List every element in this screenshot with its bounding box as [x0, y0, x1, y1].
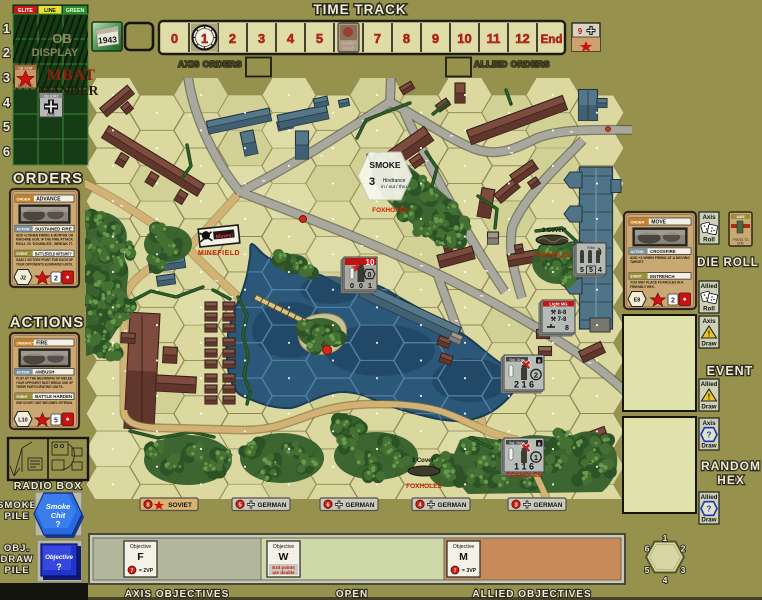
- svg-text:10: 10: [366, 258, 375, 267]
- svg-text:ACTION: ACTION: [17, 227, 31, 231]
- svg-text:2: 2: [229, 31, 236, 46]
- svg-text:7: 7: [131, 569, 134, 575]
- svg-text:GERMAN: GERMAN: [346, 502, 375, 509]
- svg-text:OPEN: OPEN: [336, 589, 368, 600]
- svg-text:J2: J2: [20, 276, 26, 282]
- svg-text:Objective: Objective: [45, 554, 73, 561]
- svg-text:M: M: [459, 551, 468, 563]
- svg-text:4: 4: [3, 95, 11, 110]
- svg-text:1: 1: [663, 533, 668, 543]
- svg-text:Axis: Axis: [702, 420, 716, 427]
- svg-text:ONE SOVIET UNIT BECOMES VETERA: ONE SOVIET UNIT BECOMES VETERAN.: [16, 401, 73, 405]
- svg-text:FOXHOLES: FOXHOLES: [372, 207, 408, 214]
- svg-text:9: 9: [578, 27, 583, 36]
- svg-text:ACTIONS: ACTIONS: [10, 314, 85, 331]
- svg-text:AXIS: AXIS: [736, 215, 745, 219]
- svg-text:2: 2: [3, 45, 11, 60]
- svg-text:3 Cover*: 3 Cover*: [542, 228, 567, 234]
- svg-text:2 1 6: 2 1 6: [514, 380, 534, 390]
- svg-text:3: 3: [681, 565, 686, 575]
- svg-text:FOXHOLES: FOXHOLES: [406, 483, 442, 490]
- svg-text:in / out / thru: in / out / thru: [381, 184, 407, 189]
- svg-text:FOXHOLES: FOXHOLES: [535, 252, 571, 259]
- svg-text:FOXHOLES: FOXHOLES: [506, 472, 542, 479]
- svg-text:TARGET.: TARGET.: [630, 260, 644, 264]
- svg-text:3: 3: [514, 503, 517, 509]
- svg-text:?: ?: [707, 431, 712, 440]
- svg-text:6: 6: [645, 544, 650, 554]
- svg-text:TIME TRACK: TIME TRACK: [313, 2, 406, 17]
- svg-text:AXIS ORDERS: AXIS ORDERS: [178, 59, 242, 69]
- svg-text:ALLIED OBJECTIVES: ALLIED OBJECTIVES: [472, 589, 591, 600]
- svg-text:THEIR PARTICIPATING UNITS.: THEIR PARTICIPATING UNITS.: [16, 385, 64, 389]
- svg-text:⚒ 8-8: ⚒ 8-8: [551, 309, 567, 316]
- svg-text:PILE: PILE: [4, 511, 29, 522]
- svg-text:⚒ 7-8: ⚒ 7-8: [551, 316, 567, 323]
- svg-text:Rifle: Rifle: [587, 245, 596, 250]
- svg-text:1: 1: [368, 281, 372, 290]
- svg-text:CROSSFIRE: CROSSFIRE: [650, 249, 676, 254]
- svg-text:Draw: Draw: [701, 443, 716, 450]
- svg-text:OB STAT: OB STAT: [44, 94, 60, 98]
- svg-text:2: 2: [671, 298, 675, 305]
- svg-text:ORDERS: ORDERS: [13, 170, 83, 187]
- svg-text:9: 9: [432, 31, 439, 46]
- svg-text:LINE: LINE: [44, 8, 56, 14]
- svg-text:2: 2: [54, 276, 58, 283]
- svg-text:5: 5: [589, 267, 593, 274]
- svg-text:4: 4: [598, 267, 602, 274]
- svg-text:SMOKE: SMOKE: [0, 500, 37, 511]
- svg-text:4: 4: [287, 31, 295, 46]
- svg-text:GREEN: GREEN: [66, 8, 85, 14]
- svg-text:0: 0: [359, 281, 363, 290]
- svg-text:OB STAT: OB STAT: [18, 66, 34, 70]
- svg-text:ACTION: ACTION: [17, 371, 31, 375]
- svg-text:RANDOM: RANDOM: [701, 459, 761, 473]
- svg-text:5: 5: [54, 418, 58, 425]
- svg-text:6: 6: [3, 144, 11, 159]
- svg-text:OB: OB: [52, 31, 72, 46]
- svg-text:DISPLAY: DISPLAY: [32, 47, 79, 59]
- svg-text:ACTION: ACTION: [631, 250, 645, 254]
- svg-text:EVENT: EVENT: [707, 364, 754, 378]
- svg-text:Light MG: Light MG: [549, 302, 567, 307]
- svg-text:Roll: Roll: [703, 306, 715, 313]
- svg-text:Draw: Draw: [701, 341, 716, 348]
- svg-text:FRIENDLY HEX.: FRIENDLY HEX.: [630, 285, 655, 289]
- svg-text:MBAT: MBAT: [47, 67, 96, 84]
- svg-text:3: 3: [369, 176, 375, 188]
- svg-text:Allied: Allied: [701, 494, 718, 501]
- svg-text:1: 1: [3, 21, 11, 36]
- svg-text:1943: 1943: [98, 34, 118, 45]
- svg-text:1: 1: [201, 31, 208, 46]
- svg-text:END: END: [737, 242, 744, 246]
- svg-text:4: 4: [663, 575, 668, 585]
- svg-text:EVENT: EVENT: [17, 252, 29, 256]
- svg-text:SOVIET: SOVIET: [168, 502, 192, 509]
- svg-text:Roll: Roll: [703, 237, 715, 244]
- svg-text:are double: are double: [272, 570, 295, 575]
- svg-text:SMOKE: SMOKE: [369, 160, 401, 170]
- svg-text:ADVANCE: ADVANCE: [36, 197, 61, 203]
- svg-text:7: 7: [454, 569, 457, 575]
- svg-text:Allied: Allied: [701, 381, 718, 388]
- svg-text:EVENT: EVENT: [17, 395, 29, 399]
- svg-text:Axis: Axis: [702, 318, 716, 325]
- svg-text:0: 0: [350, 281, 354, 290]
- svg-text:3: 3: [258, 31, 265, 46]
- svg-text:ORDER: ORDER: [631, 220, 645, 224]
- svg-text:ORDER: ORDER: [17, 197, 31, 201]
- svg-text:GERMAN: GERMAN: [258, 502, 287, 509]
- svg-text:Draw: Draw: [701, 404, 716, 411]
- svg-text:AMBUSH: AMBUSH: [35, 370, 54, 375]
- svg-text:= 3VP: = 3VP: [462, 568, 477, 574]
- svg-text:5: 5: [645, 565, 650, 575]
- svg-text:ROLL IS 'DOUBLES', BREAK IT.: ROLL IS 'DOUBLES', BREAK IT.: [16, 242, 73, 246]
- svg-text:LINE: LINE: [47, 113, 56, 117]
- svg-text:0: 0: [368, 272, 372, 279]
- svg-text:EVENT: EVENT: [631, 275, 643, 279]
- svg-text:5: 5: [316, 31, 323, 46]
- svg-text:ORDER/ACT: ORDER/ACT: [17, 341, 35, 345]
- svg-text:AXIS OBJECTIVES: AXIS OBJECTIVES: [125, 589, 229, 600]
- svg-text:7: 7: [374, 31, 381, 46]
- svg-text:Draw: Draw: [701, 517, 716, 524]
- svg-text:= 2VP: = 2VP: [139, 568, 154, 574]
- svg-text:!: !: [708, 330, 711, 339]
- svg-text:8: 8: [403, 31, 410, 46]
- svg-text:BATTLE HARDEN: BATTLE HARDEN: [35, 394, 72, 399]
- svg-text:PILE: PILE: [4, 565, 29, 576]
- svg-text:Axis: Axis: [702, 214, 716, 221]
- svg-text:Allied: Allied: [701, 283, 718, 290]
- svg-text:5: 5: [238, 503, 241, 509]
- svg-text:FIRE: FIRE: [36, 341, 48, 347]
- svg-text:Objective: Objective: [130, 544, 152, 550]
- svg-text:0: 0: [171, 31, 178, 46]
- svg-text:8: 8: [565, 325, 569, 332]
- svg-text:11: 11: [487, 31, 501, 46]
- svg-text:1: 1: [534, 453, 538, 462]
- svg-text:E8: E8: [634, 298, 641, 304]
- svg-text:3 Cover*: 3 Cover*: [412, 458, 437, 464]
- svg-text:2: 2: [681, 544, 686, 554]
- svg-text:SUSTAINED FIRE: SUSTAINED FIRE: [35, 227, 72, 232]
- svg-text:10: 10: [457, 31, 471, 46]
- svg-text:RADIO BOX: RADIO BOX: [14, 480, 83, 492]
- svg-text:Chit: Chit: [51, 511, 66, 520]
- svg-text:5: 5: [580, 267, 584, 274]
- svg-text:2: 2: [534, 371, 538, 380]
- svg-text:MOVE: MOVE: [651, 220, 666, 226]
- svg-text:L10: L10: [18, 418, 27, 424]
- svg-text:ENTRENCH: ENTRENCH: [650, 274, 674, 279]
- svg-text:?: ?: [56, 520, 61, 529]
- svg-text:3: 3: [3, 70, 11, 85]
- svg-text:?: ?: [56, 562, 62, 572]
- svg-text:Death: Death: [343, 46, 355, 51]
- svg-text:HEX: HEX: [717, 473, 745, 487]
- svg-text:F: F: [137, 551, 144, 563]
- svg-text:End: End: [541, 34, 563, 46]
- svg-text:MINEFIELD: MINEFIELD: [198, 250, 240, 257]
- svg-text:W: W: [279, 551, 289, 563]
- svg-text:DIE ROLL: DIE ROLL: [697, 257, 759, 269]
- svg-text:6: 6: [326, 503, 329, 509]
- svg-text:5: 5: [3, 119, 11, 134]
- svg-text:ALLIED ORDERS: ALLIED ORDERS: [474, 59, 550, 69]
- svg-text:Smoke: Smoke: [46, 502, 71, 511]
- svg-text:?: ?: [707, 505, 712, 514]
- svg-text:!: !: [708, 393, 711, 402]
- svg-text:YOUR OPPONENTS ELIMINATED UNIT: YOUR OPPONENTS ELIMINATED UNITS.: [16, 263, 73, 267]
- svg-text:Objective: Objective: [453, 544, 475, 550]
- svg-text:GAIN 1 VICTORY POINT FOR EACH: GAIN 1 VICTORY POINT FOR EACH OF: [16, 258, 73, 262]
- svg-text:Objective: Objective: [273, 544, 295, 550]
- svg-text:12: 12: [515, 31, 529, 46]
- svg-text:8: 8: [146, 503, 149, 509]
- svg-text:OBJ.: OBJ.: [4, 543, 30, 554]
- svg-text:ELITE: ELITE: [18, 8, 33, 14]
- svg-text:BATTLEFIELD INTEGRITY: BATTLEFIELD INTEGRITY: [35, 251, 72, 256]
- svg-text:GERMAN: GERMAN: [534, 502, 563, 509]
- svg-text:DRAW: DRAW: [0, 554, 33, 565]
- svg-text:GERMAN: GERMAN: [438, 502, 467, 509]
- svg-text:DEFEND: DEFEND: [18, 84, 33, 88]
- svg-text:1 1 6: 1 1 6: [514, 462, 534, 472]
